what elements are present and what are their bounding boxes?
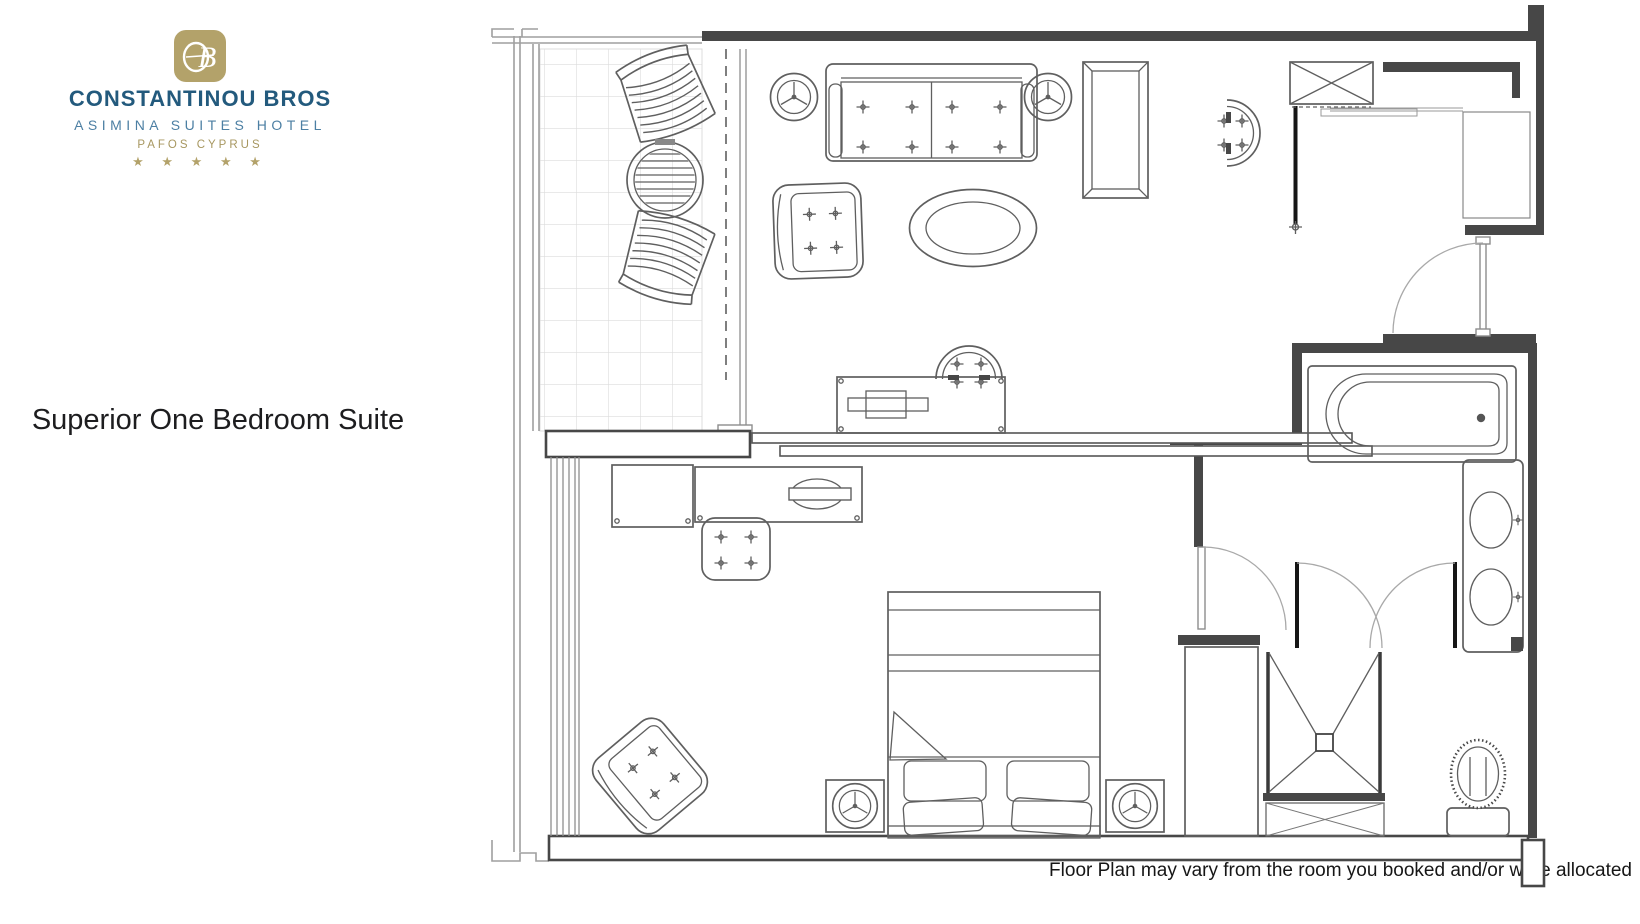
pillow-icon <box>1007 761 1089 801</box>
bedroom-door-leaf <box>1198 547 1205 629</box>
living-room-window <box>740 49 746 425</box>
faucet-icon <box>1513 592 1523 602</box>
entry-closet <box>1330 108 1530 218</box>
closet-icon <box>1185 647 1258 836</box>
page-title: Superior One Bedroom Suite <box>28 398 408 442</box>
shower-door-swing <box>1297 563 1382 648</box>
bathtub-drain <box>1477 414 1485 422</box>
logo-five-stars: ★ ★ ★ ★ ★ <box>60 154 340 170</box>
pillow-icon <box>903 797 984 835</box>
tv-cabinet-icon <box>1083 62 1148 198</box>
writing-desk-icon <box>837 377 1005 433</box>
shower-drain <box>1316 734 1333 751</box>
side-table-icon <box>612 465 693 527</box>
logo-hotel-name: ASIMINA SUITES HOTEL <box>60 117 340 133</box>
armchair-icon <box>772 182 863 279</box>
double-bed-icon <box>888 592 1100 838</box>
bed-sheet-fold <box>890 712 946 760</box>
luggage-bench-icon <box>702 518 770 580</box>
balcony-railing-corner <box>492 29 538 37</box>
entrance-door-swing <box>1393 243 1483 333</box>
entrance-door-leaf <box>1480 243 1486 331</box>
bedroom-window <box>551 457 579 836</box>
page: { "page": { "background": "#ffffff" }, "… <box>0 0 1640 924</box>
logo-monogram-icon: B <box>174 30 226 82</box>
balcony-tiles <box>540 49 702 431</box>
svg-text:B: B <box>198 41 216 74</box>
faucet-icon <box>1513 515 1523 525</box>
pillow-icon <box>904 761 986 801</box>
walk-in-shower-icon <box>1263 652 1385 836</box>
sliding-partition-door <box>752 433 1352 443</box>
pillow-icon <box>1011 797 1092 835</box>
partition-end-mark <box>1289 221 1302 234</box>
living-room <box>771 62 1531 433</box>
logo-hotel-group-name: CONSTANTINOU BROS <box>60 86 340 112</box>
bedroom <box>551 457 1164 840</box>
tv-console-icon <box>695 467 862 522</box>
floor-plan <box>480 0 1640 924</box>
table-lamp-icon <box>1113 784 1158 829</box>
desk-chair-icon <box>936 346 1002 389</box>
table-lamp-icon <box>833 784 878 829</box>
bedroom-armchair-icon <box>586 712 714 841</box>
side-table-icon <box>771 74 818 121</box>
sofa-icon <box>826 64 1037 161</box>
sliding-partition-door <box>780 446 1372 456</box>
oval-coffee-table-icon <box>910 190 1037 267</box>
wc-door-swing <box>1370 563 1455 648</box>
cabinet-chair-icon <box>1218 100 1261 166</box>
hotel-logo: B CONSTANTINOU BROS ASIMINA SUITES HOTEL… <box>60 30 340 170</box>
toilet-icon <box>1447 740 1509 836</box>
logo-location: PAFOS CYPRUS <box>60 139 340 151</box>
double-sink-vanity-icon <box>1463 460 1523 652</box>
bedroom-door-swing <box>1203 547 1286 630</box>
side-table-icon <box>1025 74 1072 121</box>
